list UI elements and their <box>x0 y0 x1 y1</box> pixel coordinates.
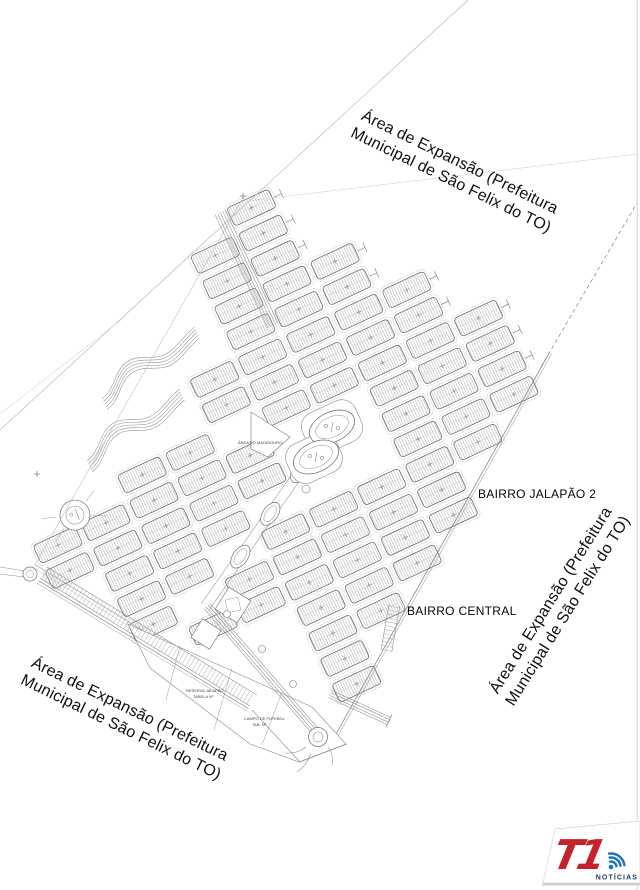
bairro-jalapao-label: BAIRRO JALAPÃO 2 <box>478 487 596 501</box>
reserva-label-line1: RESERVA JALAPÃO <box>186 688 224 693</box>
bairro-central-label: BAIRRO CENTRAL <box>407 604 517 618</box>
matadouro-label: ÁREA DO MATADOURO <box>238 440 282 445</box>
campo-label-line2: TAB. Nº <box>252 722 267 727</box>
logo-t1-text: T1 <box>549 831 608 878</box>
campo-label-line1: CAMPO DE FUTEBOL <box>244 716 286 721</box>
left-corner-roundabout <box>0 567 37 581</box>
t1-noticias-logo: T1 NOTÍCIAS <box>539 821 640 887</box>
reserva-label-line2: TABELA Nº <box>193 694 214 699</box>
plat-map: ÁREA DO MATADOURORESERVA JALAPÃOTABELA N… <box>0 0 640 890</box>
logo-noticias-text: NOTÍCIAS <box>596 873 638 882</box>
page: ÁREA DO MATADOURORESERVA JALAPÃOTABELA N… <box>0 0 640 890</box>
logo-card-shadow <box>542 883 640 886</box>
